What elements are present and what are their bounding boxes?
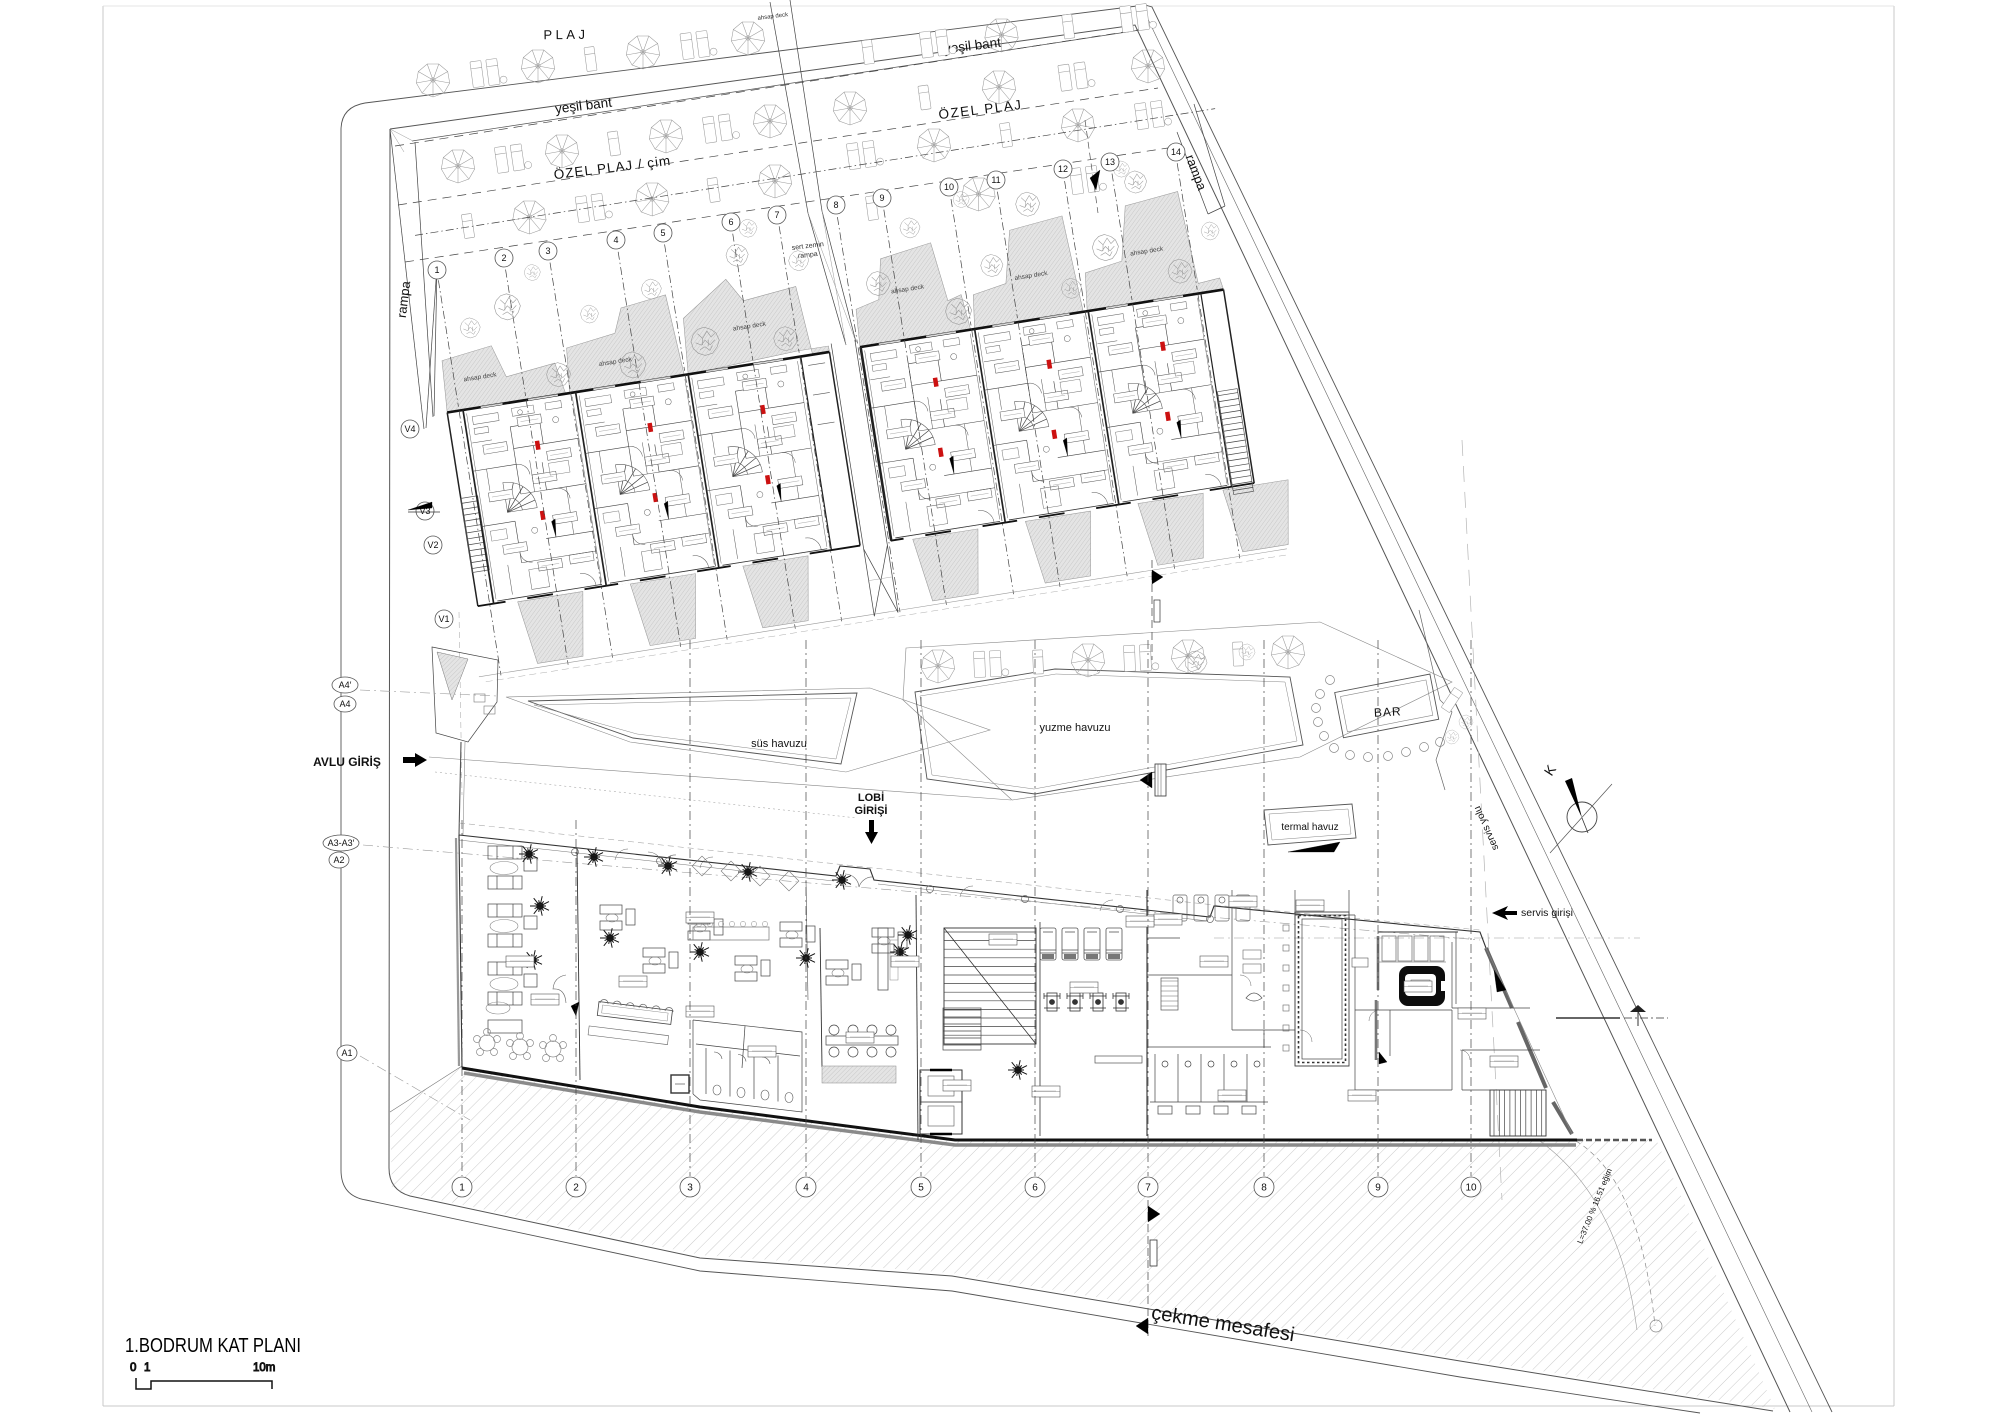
- svg-text:GİRİŞİ: GİRİŞİ: [854, 804, 887, 817]
- svg-text:7: 7: [774, 210, 779, 220]
- svg-text:10m: 10m: [253, 1362, 275, 1374]
- svg-text:6: 6: [728, 217, 733, 227]
- svg-text:LOBİ: LOBİ: [858, 791, 884, 804]
- svg-text:9: 9: [1375, 1183, 1381, 1194]
- svg-text:2: 2: [573, 1183, 579, 1194]
- svg-text:7: 7: [1145, 1183, 1151, 1194]
- svg-text:9: 9: [879, 193, 884, 203]
- svg-text:V1: V1: [438, 614, 449, 624]
- svg-text:süs havuzu: süs havuzu: [751, 738, 807, 750]
- svg-text:11: 11: [991, 175, 1000, 185]
- svg-text:1: 1: [434, 265, 439, 275]
- svg-text:8: 8: [1261, 1183, 1267, 1194]
- svg-text:AVLU GİRİŞ: AVLU GİRİŞ: [313, 754, 381, 769]
- svg-text:servis girişi: servis girişi: [1521, 907, 1573, 919]
- svg-text:14: 14: [1171, 147, 1181, 157]
- svg-text:0: 0: [130, 1362, 136, 1374]
- svg-text:termal havuz: termal havuz: [1281, 822, 1338, 833]
- svg-text:V2: V2: [427, 540, 438, 550]
- svg-text:PLAJ: PLAJ: [543, 27, 588, 42]
- svg-text:4: 4: [613, 235, 618, 245]
- svg-text:V4: V4: [404, 424, 415, 434]
- svg-text:4: 4: [803, 1183, 809, 1194]
- svg-text:1: 1: [144, 1362, 150, 1374]
- svg-text:A2: A2: [333, 855, 344, 865]
- svg-text:5: 5: [918, 1183, 924, 1194]
- svg-text:5: 5: [660, 228, 665, 238]
- svg-text:A4′: A4′: [339, 680, 352, 690]
- svg-text:A3-A3′: A3-A3′: [328, 838, 355, 848]
- svg-text:1.BODRUM KAT PLANI: 1.BODRUM KAT PLANI: [125, 1335, 301, 1357]
- svg-text:6: 6: [1032, 1183, 1038, 1194]
- svg-text:A4: A4: [339, 699, 350, 709]
- svg-text:yuzme havuzu: yuzme havuzu: [1040, 722, 1111, 734]
- svg-text:12: 12: [1058, 164, 1068, 174]
- svg-text:3: 3: [545, 246, 550, 256]
- svg-text:10: 10: [1465, 1183, 1477, 1194]
- svg-text:13: 13: [1105, 157, 1115, 167]
- svg-text:A1: A1: [341, 1048, 352, 1058]
- svg-text:10: 10: [944, 182, 954, 192]
- svg-text:2: 2: [501, 253, 506, 263]
- svg-text:8: 8: [833, 200, 838, 210]
- svg-text:3: 3: [687, 1183, 693, 1194]
- svg-text:1: 1: [459, 1183, 465, 1194]
